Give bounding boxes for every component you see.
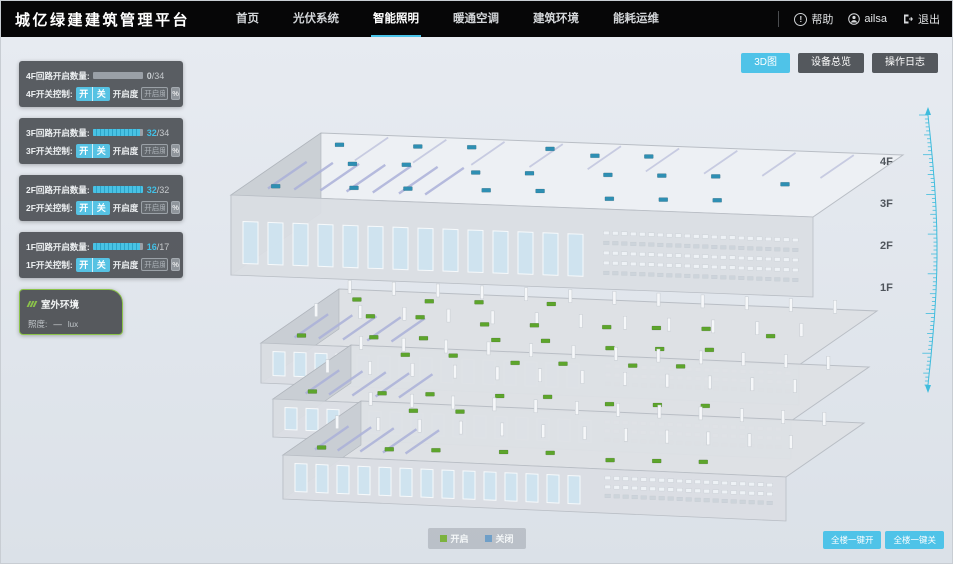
circuit-count-value: 32/32 xyxy=(147,185,170,195)
nav-item-env[interactable]: 建筑环境 xyxy=(531,1,581,37)
device-overview-button[interactable]: 设备总览 xyxy=(798,53,864,73)
openness-input[interactable] xyxy=(141,201,168,214)
help-icon: ! xyxy=(794,13,807,26)
switch-control-label: 3F开关控制: xyxy=(26,145,73,157)
app-title: 城亿绿建建筑管理平台 xyxy=(15,9,190,30)
switch-off-button[interactable]: 关 xyxy=(93,144,110,158)
logout-icon xyxy=(902,13,914,25)
status-legend: 开启 关闭 xyxy=(427,528,525,549)
divider xyxy=(778,11,779,27)
nav-item-lighting[interactable]: 智能照明 xyxy=(371,1,421,37)
circuit-progress-bar xyxy=(93,72,143,79)
nav-item-hvac[interactable]: 暖通空调 xyxy=(451,1,501,37)
openness-label: 开启度 xyxy=(113,145,139,157)
circuit-count-label: 2F回路开启数量: xyxy=(26,184,90,196)
top-bar: 城亿绿建建筑管理平台 首页 光伏系统 智能照明 暖通空调 建筑环境 能耗运维 !… xyxy=(1,1,952,37)
nav-item-home[interactable]: 首页 xyxy=(234,1,261,37)
help-button[interactable]: ! 帮助 xyxy=(794,11,833,27)
floor-panel-2f: 2F回路开启数量: 32/32 2F开关控制: 开关 开启度 % xyxy=(19,175,183,221)
percent-button[interactable]: % xyxy=(171,258,180,271)
floor-label-3f: 3F xyxy=(880,198,893,210)
smart-lighting-page: 城亿绿建建筑管理平台 首页 光伏系统 智能照明 暖通空调 建筑环境 能耗运维 !… xyxy=(0,0,953,564)
view-toolbar: 3D图 设备总览 操作日志 xyxy=(741,53,938,73)
switch-control-label: 2F开关控制: xyxy=(26,202,73,214)
switch-on-button[interactable]: 开 xyxy=(76,144,93,158)
operation-log-button[interactable]: 操作日志 xyxy=(872,53,938,73)
floor-panel-3f: 3F回路开启数量: 32/34 3F开关控制: 开关 开启度 % xyxy=(19,118,183,164)
circuit-progress-bar xyxy=(93,186,143,193)
floor-ruler-scale xyxy=(904,103,948,399)
circuit-count-label: 4F回路开启数量: xyxy=(26,70,90,82)
nav-item-energy[interactable]: 能耗运维 xyxy=(611,1,661,37)
switch-off-button[interactable]: 关 xyxy=(93,201,110,215)
circuit-progress-bar xyxy=(93,129,143,136)
circuit-count-value: 0/34 xyxy=(147,71,165,81)
switch-off-button[interactable]: 关 xyxy=(93,258,110,272)
circuit-count-value: 32/34 xyxy=(147,128,170,138)
legend-off-label: 关闭 xyxy=(496,532,514,545)
switch-group: 开关 xyxy=(76,144,110,158)
switch-on-button[interactable]: 开 xyxy=(76,258,93,272)
nav-item-pv[interactable]: 光伏系统 xyxy=(291,1,341,37)
floor-label-2f: 2F xyxy=(880,240,893,252)
bulk-controls: 全楼一键开 全楼一键关 xyxy=(823,531,944,549)
switch-group: 开关 xyxy=(76,201,110,215)
percent-button[interactable]: % xyxy=(171,87,180,100)
floor-panel-4f: 4F回路开启数量: 0/34 4F开关控制: 开关 开启度 % xyxy=(19,61,183,107)
username: ailsa xyxy=(864,13,887,25)
percent-button[interactable]: % xyxy=(171,201,180,214)
all-floors-off-button[interactable]: 全楼一键关 xyxy=(885,531,944,549)
illuminance-unit: lux xyxy=(68,320,78,329)
openness-input[interactable] xyxy=(141,87,168,100)
outdoor-env-panel: 室外环境 照度: — lux xyxy=(19,289,123,335)
green-slashes-icon xyxy=(28,299,37,310)
switch-control-label: 1F开关控制: xyxy=(26,259,73,271)
legend-off-swatch xyxy=(485,535,492,542)
switch-control-label: 4F开关控制: xyxy=(26,88,73,100)
percent-button[interactable]: % xyxy=(171,144,180,157)
all-floors-on-button[interactable]: 全楼一键开 xyxy=(823,531,882,549)
building-3d-view[interactable] xyxy=(193,45,908,525)
openness-label: 开启度 xyxy=(113,202,139,214)
outdoor-title: 室外环境 xyxy=(41,297,79,311)
illuminance-value: — xyxy=(53,319,62,329)
user-icon xyxy=(848,13,860,25)
switch-group: 开关 xyxy=(76,87,110,101)
floor-label-4f: 4F xyxy=(880,156,893,168)
top-right-cluster: ! 帮助 ailsa 退出 xyxy=(778,11,940,27)
circuit-count-label: 3F回路开启数量: xyxy=(26,127,90,139)
main-nav: 首页 光伏系统 智能照明 暖通空调 建筑环境 能耗运维 xyxy=(234,1,661,37)
circuit-progress-bar xyxy=(93,243,143,250)
legend-on-label: 开启 xyxy=(450,532,468,545)
switch-on-button[interactable]: 开 xyxy=(76,87,93,101)
logout-button[interactable]: 退出 xyxy=(902,11,940,27)
legend-on-swatch xyxy=(439,535,446,542)
floor-label-1f: 1F xyxy=(880,282,893,294)
floor-panel-1f: 1F回路开启数量: 16/17 1F开关控制: 开关 开启度 % xyxy=(19,232,183,278)
illuminance-label: 照度: xyxy=(28,318,47,330)
switch-off-button[interactable]: 关 xyxy=(93,87,110,101)
circuit-count-label: 1F回路开启数量: xyxy=(26,241,90,253)
circuit-count-value: 16/17 xyxy=(147,242,170,252)
switch-on-button[interactable]: 开 xyxy=(76,201,93,215)
switch-group: 开关 xyxy=(76,258,110,272)
openness-label: 开启度 xyxy=(113,88,139,100)
openness-input[interactable] xyxy=(141,144,168,157)
view-3d-button[interactable]: 3D图 xyxy=(741,53,790,73)
openness-input[interactable] xyxy=(141,258,168,271)
user-menu[interactable]: ailsa xyxy=(848,13,887,25)
openness-label: 开启度 xyxy=(113,259,139,271)
